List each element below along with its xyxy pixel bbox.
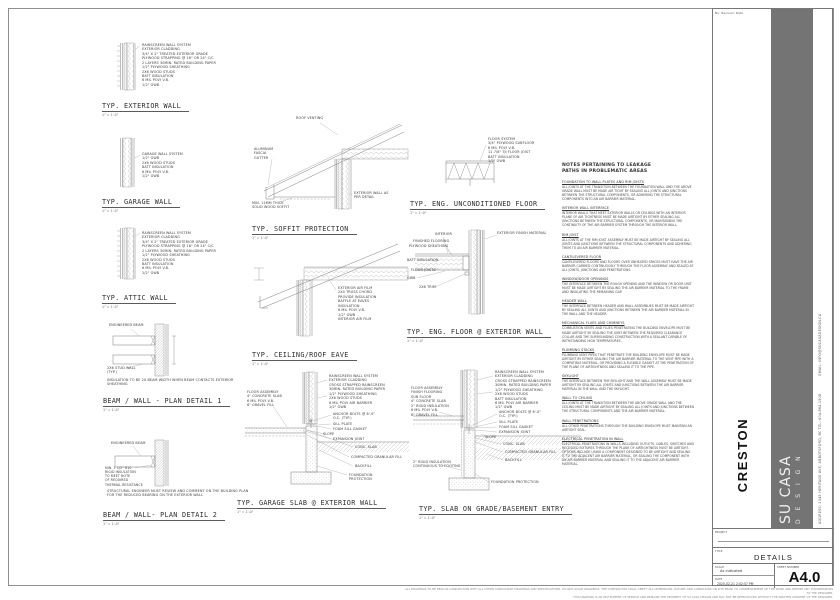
slab-grade-protection-label: FOUNDATION PROTECTION [491,480,539,484]
leakage-note-section: WALL TO CEILINGALL JOINTS AT THE TRANSIT… [562,396,694,413]
detail-typ-ceiling-roof-eave: EXTERIOR AIR FILM2X4 TRUSS CHORDPROVIDE … [250,238,412,358]
detail-scale-text: 1" = 1'-0" [103,522,225,526]
leakage-notes-heading: NOTES PERTAINING TO LEAKAGE PATHS IN PRO… [562,163,666,175]
garage-slab-anchor-label: ANCHOR BOLTS @ 6'-0" O.C. (TYP.) [333,412,379,421]
firm-subtitle: D E S I G N [795,453,802,524]
plan2-pad-label: MIN. 1 1/2" R10RIGID INSULATIONTO MEET N… [105,466,143,487]
note-line: INTERIOR AIR FILM [338,317,376,321]
client-name: CRESTON [735,407,750,503]
project-cell: PROJECT [713,528,834,547]
detail-title-eave: TYP. CEILING/ROOF EAVE 1" = 1'-0" [252,342,357,366]
eng-floor-gwb-label: GWB [407,276,416,280]
detail-title-text: TYP. SLAB ON GRADE/BASEMENT ENTRY [419,505,572,515]
note-line: 1/2" GWB [329,405,385,409]
eave-assembly-notes: EXTERIOR AIR FILM2X4 TRUSS CHORDPROVIDE … [338,286,376,321]
detail-typ-soffit-protection: ROOF VENTING ALUMINUMFASCIAGUTTER MIN. 1… [250,115,410,233]
date-value: 2020-02-21 2:02:57 PM [717,582,753,586]
detail-title-plan-2: BEAM / WALL- PLAN DETAIL 2 1" = 1'-0" [103,502,225,526]
detail-title-exterior-wall: TYP. EXTERIOR WALL 1" = 1'-0" [102,93,189,117]
leakage-note-section: MECHANICAL FLUES AND CHIMNEYSCOMBUSTION … [562,321,694,342]
detail-title-garage-slab: TYP. GARAGE SLAB @ EXTERIOR WALL 1" = 1'… [237,490,386,514]
plan1-note: INSULATION TO BE 2X BEAM WIDTH WHEN BEAM… [107,378,249,387]
garage-slab-backfill-label: BACKFILL [355,464,372,468]
slab-grade-granular-label: COMPACTED GRANULAR FILL [505,450,556,454]
eng-floor-exterior-finish-label: EXTERIOR FINISH MATERIAL [497,231,547,235]
garage-slab-gasket-label: FOAM SILL GASKET [333,427,367,431]
note-line: THERMAL RESISTANCE [105,483,143,487]
drawing-sheet-page: { "titleblock": { "rev_header": "No. Rev… [0,0,840,600]
soffit-gutter-label: ALUMINUMFASCIAGUTTER [254,147,273,160]
plan1-beam-label: ENGINEERED BEAM [109,323,144,327]
eng-floor-sheathing-label: PLYWOOD SHEATHING [409,244,448,248]
firm-name: SU CASA [778,453,794,524]
note-line: (TYP.) [107,370,136,374]
slab-grade-floor-notes: FLOOR ASSEMBLYFINISH FLOORINGSUB FLOOR4"… [411,386,449,417]
detail-scale-text: 1" = 1'-0" [237,510,386,514]
ceiling-roof-eave-drawing [250,238,412,338]
eng-floor-trim-label: 2X6 TRIM [419,285,436,289]
slab-grade-wall-notes: RAINSCREEN WALL SYSTEMEXTERIOR CLADDINGC… [495,370,551,410]
note-line: SOLID WOOD SOFFIT [252,205,289,209]
garage-slab-protection-label: FOUNDATION PROTECTION [349,473,391,482]
detail-typ-attic-wall: RAINSCREEN WALL SYSTEMEXTERIOR CLADDING3… [100,225,240,305]
detail-title-slab-grade: TYP. SLAB ON GRADE/BASEMENT ENTRY 1" = 1… [419,496,572,520]
garage-slab-expansion-label: EXPANSION JOINT [333,437,364,441]
leakage-note-section: ELECTRICAL PENETRATION IN WALLELECTRICAL… [562,437,694,466]
slab-grade-conc-label: CONC. SLAB [503,442,525,446]
eng-floor-interior-label: INTERIOR [435,232,452,236]
eng-floor-flooring-label: FINISHED FLOORING [413,239,449,243]
soffit-wood-soffit-label: MIN. 11MM THICKSOLID WOOD SOFFIT [252,201,289,210]
plan1-wall-label: 2X6 STUD WALL(TYP.) [107,366,136,375]
unconditioned-floor-notes: FLOOR SYSTEM3/4" PLYWOOD SUBFLOOR6 MIL P… [488,137,535,164]
slab-grade-slope-label: SLOPE [485,435,496,439]
detail-scale-text: 1" = 1'-0" [102,305,176,309]
detail-scale-text: 1" = 1'-0" [252,362,357,366]
detail-title-text: TYP. ENG. FLOOR @ EXTERIOR WALL [407,328,551,338]
plan2-note: STRUCTURAL ENGINEER MUST REVIEW AND COMM… [107,489,249,498]
detail-title-soffit: TYP. SOFFIT PROTECTION 1" = 1'-0" [252,216,357,240]
detail-scale-text: 1" = 1'-0" [103,408,230,412]
slab-grade-sill-label: SILL PLATE [499,420,518,424]
note-line: GUTTER [254,156,273,160]
firm-logo: SU CASA D E S I G N [778,453,802,524]
note-line: 1/2" GWB [142,174,183,178]
attic-wall-assembly-notes: RAINSCREEN WALL SYSTEMEXTERIOR CLADDING3… [142,231,216,275]
sheet-number: A4.0 [775,569,834,586]
detail-typ-exterior-wall: RAINSCREEN WALL SYSTEMEXTERIOR CLADDING3… [100,40,240,110]
slab-grade-expansion-label: EXPANSION JOINT [499,430,530,434]
note-line: 1/2" GWB [488,159,535,163]
firm-email: EMAIL: INFO@SUCASADESIGN.CA [818,314,822,376]
project-label: PROJECT [715,530,727,534]
detail-typ-garage-wall: GARAGE WALL SYSTEM1/2" GWB2X6 WOOD STUDS… [100,135,230,207]
leakage-note-section: RIM JOISTALL JOINTS AT THE RIM JOIST ASS… [562,233,694,250]
detail-scale-text: 1" = 1'-0" [102,113,189,117]
garage-wall-assembly-notes: GARAGE WALL SYSTEM1/2" GWB2X6 WOOD STUDS… [142,152,183,179]
sheet-title-cell: TITLE DETAILS [713,547,834,563]
detail-title-text: TYP. CEILING/ROOF EAVE [252,351,357,361]
detail-title-garage-wall: TYP. GARAGE WALL 1" = 1'-0" [102,189,180,213]
title-block: No. Revision Date CRESTON SU CASA D E S … [712,8,833,586]
firm-address: ADDRESS: 2345 HERITAGE AVE, ABBOTSFORD, … [818,394,822,524]
disclaimer-line-2: THIS DRAWING IS AN INSTRUMENT OF SERVICE… [403,596,833,600]
leakage-note-section: WINDOW/DOOR OPENINGSTHE INTERFACE BETWEE… [562,277,694,294]
note-line: 1/2" GWB [142,271,216,275]
garage-slab-floor-notes: FLOOR ASSEMBLY4" CONCRETE SLAB6 MIL POLY… [247,390,282,408]
firm-contact-info: ADDRESS: 2345 HERITAGE AVE, ABBOTSFORD, … [818,314,822,524]
slab-grade-gasket-label: FOAM SILL GASKET [499,425,533,429]
scale-cell: SCALE As indicated [713,564,775,576]
detail-beam-wall-plan-2: ENGINEERED BEAM MIN. 1 1/2" R10RIGID INS… [103,438,253,520]
detail-beam-wall-plan-1: ENGINEERED BEAM 2X6 STUD WALL(TYP.) INSU… [103,322,253,404]
detail-title-text: TYP. GARAGE SLAB @ EXTERIOR WALL [237,499,386,509]
leakage-note-section: SKYLIGHTTHE INTERFACE BETWEEN THE SKYLIG… [562,374,694,391]
garage-slab-wall-notes: RAINSCREEN WALL SYSTEMEXTERIOR CLADDINGC… [329,374,385,409]
detail-title-text: BEAM / WALL - PLAN DETAIL 1 [103,397,230,407]
detail-typ-eng-unconditioned-floor: FLOOR SYSTEM3/4" PLYWOOD SUBFLOOR6 MIL P… [410,133,570,205]
revision-table-header: No. Revision Date [715,11,743,15]
detail-title-text: TYP. ENG. UNCONDITIONED FLOOR [410,200,545,210]
detail-scale-text: 1" = 1'-0" [102,209,180,213]
detail-title-text: TYP. ATTIC WALL [102,294,176,304]
leakage-note-section: HEADER WALLTHE INTERFACE BETWEEN HEADER … [562,299,694,316]
leakage-note-section: CANTILEVERED FLOORCANTILEVERED FLOORS AN… [562,255,694,272]
garage-slab-drawing [233,370,413,488]
slab-grade-rigid-label: 2" RIGID INSULATIONCONTINUOUS TO FOOTING [413,460,460,469]
leakage-note-section: PLUMBING STACKSPLUMBING VENT PIPES THAT … [562,348,694,369]
leakage-notes-column: NOTES PERTAINING TO LEAKAGE PATHS IN PRO… [562,163,694,471]
detail-title-plan-1: BEAM / WALL - PLAN DETAIL 1 1" = 1'-0" [103,388,230,412]
detail-title-eng-floor: TYP. ENG. FLOOR @ EXTERIOR WALL 1" = 1'-… [407,319,551,343]
note-line: CONTINUOUS TO FOOTING [413,464,460,468]
garage-slab-granular-label: COMPACTED GRANULAR FILL [351,455,402,459]
garage-slab-sill-label: SILL PLATE [333,422,352,426]
firm-logo-bar [771,9,813,528]
detail-typ-garage-slab: FLOOR ASSEMBLY4" CONCRETE SLAB6 MIL POLY… [233,370,413,504]
eng-floor-joists-label: FLOOR JOISTS [411,268,436,272]
detail-title-uncond-floor: TYP. ENG. UNCONDITIONED FLOOR 1" = 1'-0" [410,191,545,215]
leakage-note-section: WALL PENETRATIONSALL OTHER PENETRATIONS … [562,419,694,432]
note-line: 6" GRAVEL FILL [411,413,449,417]
note-line: 1/2" GWB [142,83,216,87]
slab-grade-anchor-label: ANCHOR BOLTS @ 6'-0" O.C. (TYP.) [499,410,545,419]
leakage-note-section: FOUNDATION TO WALL PLATES AND RIM JOISTS… [562,180,694,201]
detail-typ-eng-floor-ext-wall: INTERIOR FINISHED FLOORING PLYWOOD SHEAT… [405,226,570,334]
sheet-title: DETAILS [713,553,834,562]
detail-title-text: TYP. EXTERIOR WALL [102,102,189,112]
leakage-notes-sections: FOUNDATION TO WALL PLATES AND RIM JOISTS… [562,180,694,466]
detail-typ-slab-on-grade: FLOOR ASSEMBLYFINISH FLOORINGSUB FLOOR4"… [405,368,585,513]
plan2-beam-label: ENGINEERED BEAM [111,441,146,445]
project-blank-line [718,541,829,542]
note-line: 6" GRAVEL FILL [247,403,282,407]
sheet-disclaimer: ALL DRAWINGS TO BE READ IN CONJUNCTION W… [403,588,833,599]
soffit-roof-venting-label: ROOF VENTING [296,116,323,120]
detail-title-attic-wall: TYP. ATTIC WALL 1" = 1'-0" [102,285,176,309]
garage-slab-slope-label: SLOPE [323,432,334,436]
soffit-exterior-wall-label: EXTERIOR WALL ASPER DETAIL [354,191,389,200]
scale-value: As indicated [720,569,742,573]
detail-scale-text: 1" = 1'-0" [410,211,545,215]
detail-scale-text: 1" = 1'-0" [407,339,551,343]
note-line: PER DETAIL [354,195,389,199]
title-block-bottom-row: SCALE As indicated DATE 2020-02-21 2:02:… [713,563,834,587]
detail-title-text: BEAM / WALL- PLAN DETAIL 2 [103,511,225,521]
sheet-number-cell: SHEET NUMBER A4.0 [775,564,834,588]
slab-grade-backfill-label: BACKFILL [505,458,522,462]
detail-scale-text: 1" = 1'-0" [419,516,572,520]
exterior-wall-assembly-notes: RAINSCREEN WALL SYSTEMEXTERIOR CLADDING3… [142,43,216,87]
leakage-note-section: INTERIOR WALL INTERFACEINTERIOR WALLS TH… [562,206,694,227]
detail-title-text: TYP. SOFFIT PROTECTION [252,225,357,235]
date-label: DATE [715,577,722,581]
garage-slab-conc-label: CONC. SLAB [355,445,377,449]
eng-floor-batt-label: BATT INSULATION [407,258,439,262]
detail-title-text: TYP. GARAGE WALL [102,198,180,208]
